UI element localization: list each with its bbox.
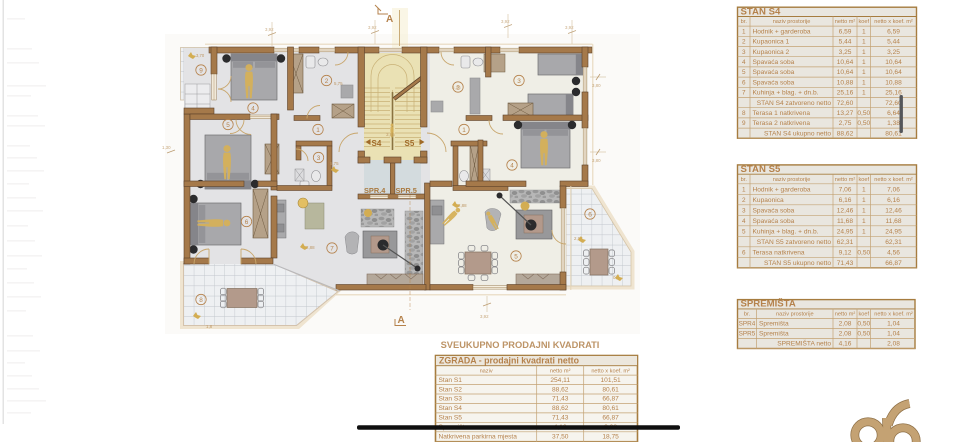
svg-text:STAN S4 ukupno netto: STAN S4 ukupno netto [764, 130, 831, 137]
svg-text:11,68: 11,68 [885, 218, 901, 225]
svg-text:netto x koef. m²: netto x koef. m² [874, 312, 913, 318]
svg-text:6: 6 [245, 219, 249, 226]
svg-text:Stan S2: Stan S2 [439, 386, 463, 393]
svg-text:Stan S4: Stan S4 [439, 405, 463, 412]
svg-text:koef: koef [859, 177, 870, 183]
svg-text:71,43: 71,43 [552, 396, 569, 403]
svg-text:71,43: 71,43 [837, 260, 854, 267]
svg-text:1,38: 1,38 [887, 120, 900, 127]
svg-text:3,80: 3,80 [592, 83, 601, 88]
svg-text:5,75: 5,75 [334, 81, 343, 86]
svg-text:37,50: 37,50 [552, 434, 569, 441]
svg-text:5: 5 [514, 253, 518, 260]
svg-text:6,64: 6,64 [887, 110, 900, 117]
svg-text:3,25: 3,25 [887, 49, 900, 56]
svg-text:br.: br. [744, 312, 751, 318]
svg-text:1: 1 [316, 127, 320, 134]
svg-text:netto x koef. m²: netto x koef. m² [591, 368, 630, 374]
svg-text:2,75: 2,75 [839, 120, 852, 127]
svg-text:Hodnik + garderoba: Hodnik + garderoba [753, 28, 811, 35]
svg-text:10,64: 10,64 [885, 69, 902, 76]
svg-text:10,88: 10,88 [885, 79, 902, 86]
svg-text:6,59: 6,59 [839, 28, 852, 35]
svg-text:Kupaonica: Kupaonica [753, 197, 784, 204]
svg-text:1: 1 [862, 28, 866, 35]
svg-text:3,92: 3,92 [565, 25, 574, 30]
svg-text:3: 3 [517, 78, 521, 85]
svg-text:naziv prostorije: naziv prostorije [773, 177, 811, 183]
svg-text:25,16: 25,16 [885, 90, 902, 97]
svg-text:5: 5 [742, 69, 746, 76]
svg-text:netto m²: netto m² [835, 312, 856, 318]
svg-text:88,62: 88,62 [552, 405, 569, 412]
svg-text:5,75: 5,75 [452, 85, 461, 90]
svg-text:netto x koef. m²: netto x koef. m² [874, 177, 913, 183]
svg-text:6: 6 [742, 79, 746, 86]
svg-text:S5: S5 [405, 139, 415, 148]
svg-text:1: 1 [742, 186, 746, 193]
svg-text:12,46: 12,46 [837, 207, 854, 214]
svg-text:SVEUKUPNO PRODAJNI KVADRATI: SVEUKUPNO PRODAJNI KVADRATI [441, 340, 600, 350]
svg-text:STAN S4 zatvoreno netto: STAN S4 zatvoreno netto [757, 100, 832, 107]
svg-text:Terasa 2 natkrivena: Terasa 2 natkrivena [753, 120, 811, 127]
svg-text:SPREMIŠTA netto: SPREMIŠTA netto [777, 339, 831, 348]
svg-text:5: 5 [226, 122, 230, 129]
svg-text:SPR.5: SPR.5 [396, 186, 417, 195]
svg-text:3: 3 [742, 49, 746, 56]
svg-text:koef: koef [859, 19, 870, 25]
svg-text:254,11: 254,11 [550, 377, 570, 384]
svg-text:1,8: 1,8 [206, 324, 213, 329]
svg-text:10,64: 10,64 [837, 69, 854, 76]
svg-text:naziv: naziv [480, 368, 493, 374]
svg-text:2: 2 [742, 197, 746, 204]
svg-text:4: 4 [742, 218, 746, 225]
svg-text:8: 8 [199, 297, 203, 304]
svg-text:3,92: 3,92 [265, 27, 274, 32]
svg-text:Kupaonica 2: Kupaonica 2 [753, 49, 790, 56]
svg-text:0,50: 0,50 [857, 331, 870, 338]
svg-text:1: 1 [862, 228, 866, 235]
svg-text:1: 1 [742, 28, 746, 35]
svg-text:3,92: 3,92 [480, 314, 489, 319]
svg-text:3,92: 3,92 [368, 25, 377, 30]
svg-text:3: 3 [742, 207, 746, 214]
svg-text:0,50: 0,50 [857, 110, 870, 117]
svg-text:88,62: 88,62 [837, 130, 854, 137]
svg-text:71,43: 71,43 [552, 415, 569, 422]
svg-text:STAN S4: STAN S4 [741, 6, 781, 17]
svg-text:6: 6 [742, 249, 746, 256]
svg-text:4: 4 [251, 105, 255, 112]
svg-text:netto x koef. m²: netto x koef. m² [874, 19, 913, 25]
svg-text:Kuhinja + blag. + dn.b.: Kuhinja + blag. + dn.b. [753, 90, 819, 97]
svg-text:1: 1 [862, 69, 866, 76]
svg-text:10,64: 10,64 [885, 59, 902, 66]
svg-text:2: 2 [325, 78, 329, 85]
svg-text:9: 9 [742, 120, 746, 127]
svg-text:4,16: 4,16 [839, 341, 852, 348]
svg-text:Hodnik + garderoba: Hodnik + garderoba [753, 186, 811, 193]
svg-text:18,75: 18,75 [602, 434, 619, 441]
svg-text:0,50: 0,50 [857, 120, 870, 127]
svg-text:naziv prostorije: naziv prostorije [773, 19, 811, 25]
svg-text:7,06: 7,06 [887, 186, 900, 193]
svg-text:Spremišta: Spremišta [759, 331, 789, 338]
svg-text:Kuhinja + blag. + dn.b.: Kuhinja + blag. + dn.b. [753, 228, 819, 235]
svg-text:Stan S5: Stan S5 [439, 415, 463, 422]
svg-text:6: 6 [588, 211, 592, 218]
svg-text:Spavaća soba: Spavaća soba [753, 79, 795, 86]
svg-text:1: 1 [862, 59, 866, 66]
svg-text:5,44: 5,44 [839, 39, 852, 46]
svg-text:4: 4 [742, 59, 746, 66]
svg-text:2,08: 2,08 [839, 321, 852, 328]
svg-text:3,92: 3,92 [501, 19, 510, 24]
svg-text:66,87: 66,87 [885, 260, 902, 267]
svg-text:A: A [398, 315, 405, 326]
svg-text:4: 4 [510, 162, 514, 169]
svg-text:Spavaća soba: Spavaća soba [753, 218, 795, 225]
svg-text:80,61: 80,61 [602, 405, 619, 412]
svg-text:6,16: 6,16 [887, 197, 900, 204]
svg-text:9,12: 9,12 [839, 249, 852, 256]
svg-text:br.: br. [741, 19, 748, 25]
svg-text:Kupaonica 1: Kupaonica 1 [753, 39, 790, 46]
svg-text:1,04: 1,04 [887, 331, 900, 338]
svg-text:naziv prostorije: naziv prostorije [776, 312, 814, 318]
svg-text:7: 7 [742, 90, 746, 97]
svg-text:101,51: 101,51 [601, 377, 622, 384]
svg-text:1,30: 1,30 [162, 145, 171, 150]
svg-text:1: 1 [862, 90, 866, 97]
svg-text:7,06: 7,06 [839, 186, 852, 193]
svg-text:88,62: 88,62 [552, 386, 569, 393]
svg-text:3,80: 3,80 [592, 158, 601, 163]
svg-text:2,08: 2,08 [839, 331, 852, 338]
svg-text:72,60: 72,60 [837, 100, 854, 107]
svg-text:SPR.4: SPR.4 [364, 186, 386, 195]
svg-text:SPR4: SPR4 [739, 321, 756, 328]
svg-text:Stan S1: Stan S1 [439, 377, 463, 384]
svg-text:2: 2 [742, 39, 746, 46]
svg-text:11,68: 11,68 [837, 218, 853, 225]
svg-text:24,95: 24,95 [837, 228, 854, 235]
svg-text:netto m²: netto m² [835, 177, 856, 183]
svg-text:Spavaća soba: Spavaća soba [753, 59, 795, 66]
svg-text:3: 3 [317, 155, 321, 162]
svg-text:S4: S4 [372, 139, 382, 148]
svg-text:66,87: 66,87 [602, 415, 619, 422]
svg-text:ZGRADA - prodajni kvadrati net: ZGRADA - prodajni kvadrati netto [439, 356, 580, 366]
svg-text:br.: br. [741, 177, 748, 183]
svg-text:STAN S5: STAN S5 [741, 164, 781, 175]
svg-text:Terasa 1 natkrivena: Terasa 1 natkrivena [753, 110, 811, 117]
svg-text:62,31: 62,31 [837, 239, 854, 246]
svg-text:10,88: 10,88 [837, 79, 854, 86]
svg-text:3,70: 3,70 [196, 53, 205, 58]
svg-text:5,75: 5,75 [330, 161, 339, 166]
svg-text:10,64: 10,64 [837, 59, 854, 66]
svg-text:1: 1 [862, 218, 866, 225]
svg-text:1,04: 1,04 [887, 321, 900, 328]
svg-text:6,16: 6,16 [839, 197, 852, 204]
svg-text:Terasa natkrivena: Terasa natkrivena [753, 249, 805, 256]
svg-text:netto m²: netto m² [835, 19, 856, 25]
svg-text:4,56: 4,56 [887, 249, 900, 256]
svg-text:12,46: 12,46 [885, 207, 902, 214]
svg-text:Spremišta: Spremišta [759, 321, 789, 328]
svg-text:0,50: 0,50 [857, 249, 870, 256]
svg-text:8: 8 [742, 110, 746, 117]
svg-text:62,31: 62,31 [885, 239, 902, 246]
svg-text:5,44: 5,44 [887, 39, 900, 46]
svg-text:5: 5 [742, 228, 746, 235]
svg-text:1: 1 [862, 186, 866, 193]
svg-text:7: 7 [330, 245, 334, 252]
svg-text:66,87: 66,87 [602, 396, 619, 403]
svg-text:STAN S5 zatvoreno netto: STAN S5 zatvoreno netto [757, 239, 832, 246]
svg-text:Stan S3: Stan S3 [439, 396, 463, 403]
svg-text:1: 1 [462, 127, 466, 134]
svg-text:9: 9 [199, 67, 203, 74]
svg-text:1: 1 [862, 79, 866, 86]
svg-text:6,59: 6,59 [887, 28, 900, 35]
svg-text:1: 1 [862, 207, 866, 214]
svg-text:3,25: 3,25 [839, 49, 852, 56]
svg-text:1: 1 [862, 197, 866, 204]
svg-text:80,61: 80,61 [602, 386, 619, 393]
svg-text:A: A [386, 14, 393, 25]
svg-text:2,08: 2,08 [887, 341, 900, 348]
svg-text:25,16: 25,16 [837, 90, 854, 97]
svg-text:Natkrivena parkirna mjesta: Natkrivena parkirna mjesta [439, 434, 518, 441]
svg-text:netto m²: netto m² [550, 368, 571, 374]
svg-text:1: 1 [862, 49, 866, 56]
svg-text:0,50: 0,50 [857, 321, 870, 328]
svg-text:SPREMIŠTA: SPREMIŠTA [741, 298, 796, 310]
svg-text:STAN S5 ukupno netto: STAN S5 ukupno netto [764, 260, 831, 267]
svg-text:SPR5: SPR5 [739, 331, 756, 338]
svg-text:koef: koef [859, 312, 870, 318]
svg-text:Spavaća soba: Spavaća soba [753, 207, 795, 214]
svg-text:13,27: 13,27 [837, 110, 854, 117]
svg-text:Spavaća soba: Spavaća soba [753, 69, 795, 76]
svg-text:1: 1 [862, 39, 866, 46]
svg-text:24,95: 24,95 [885, 228, 902, 235]
